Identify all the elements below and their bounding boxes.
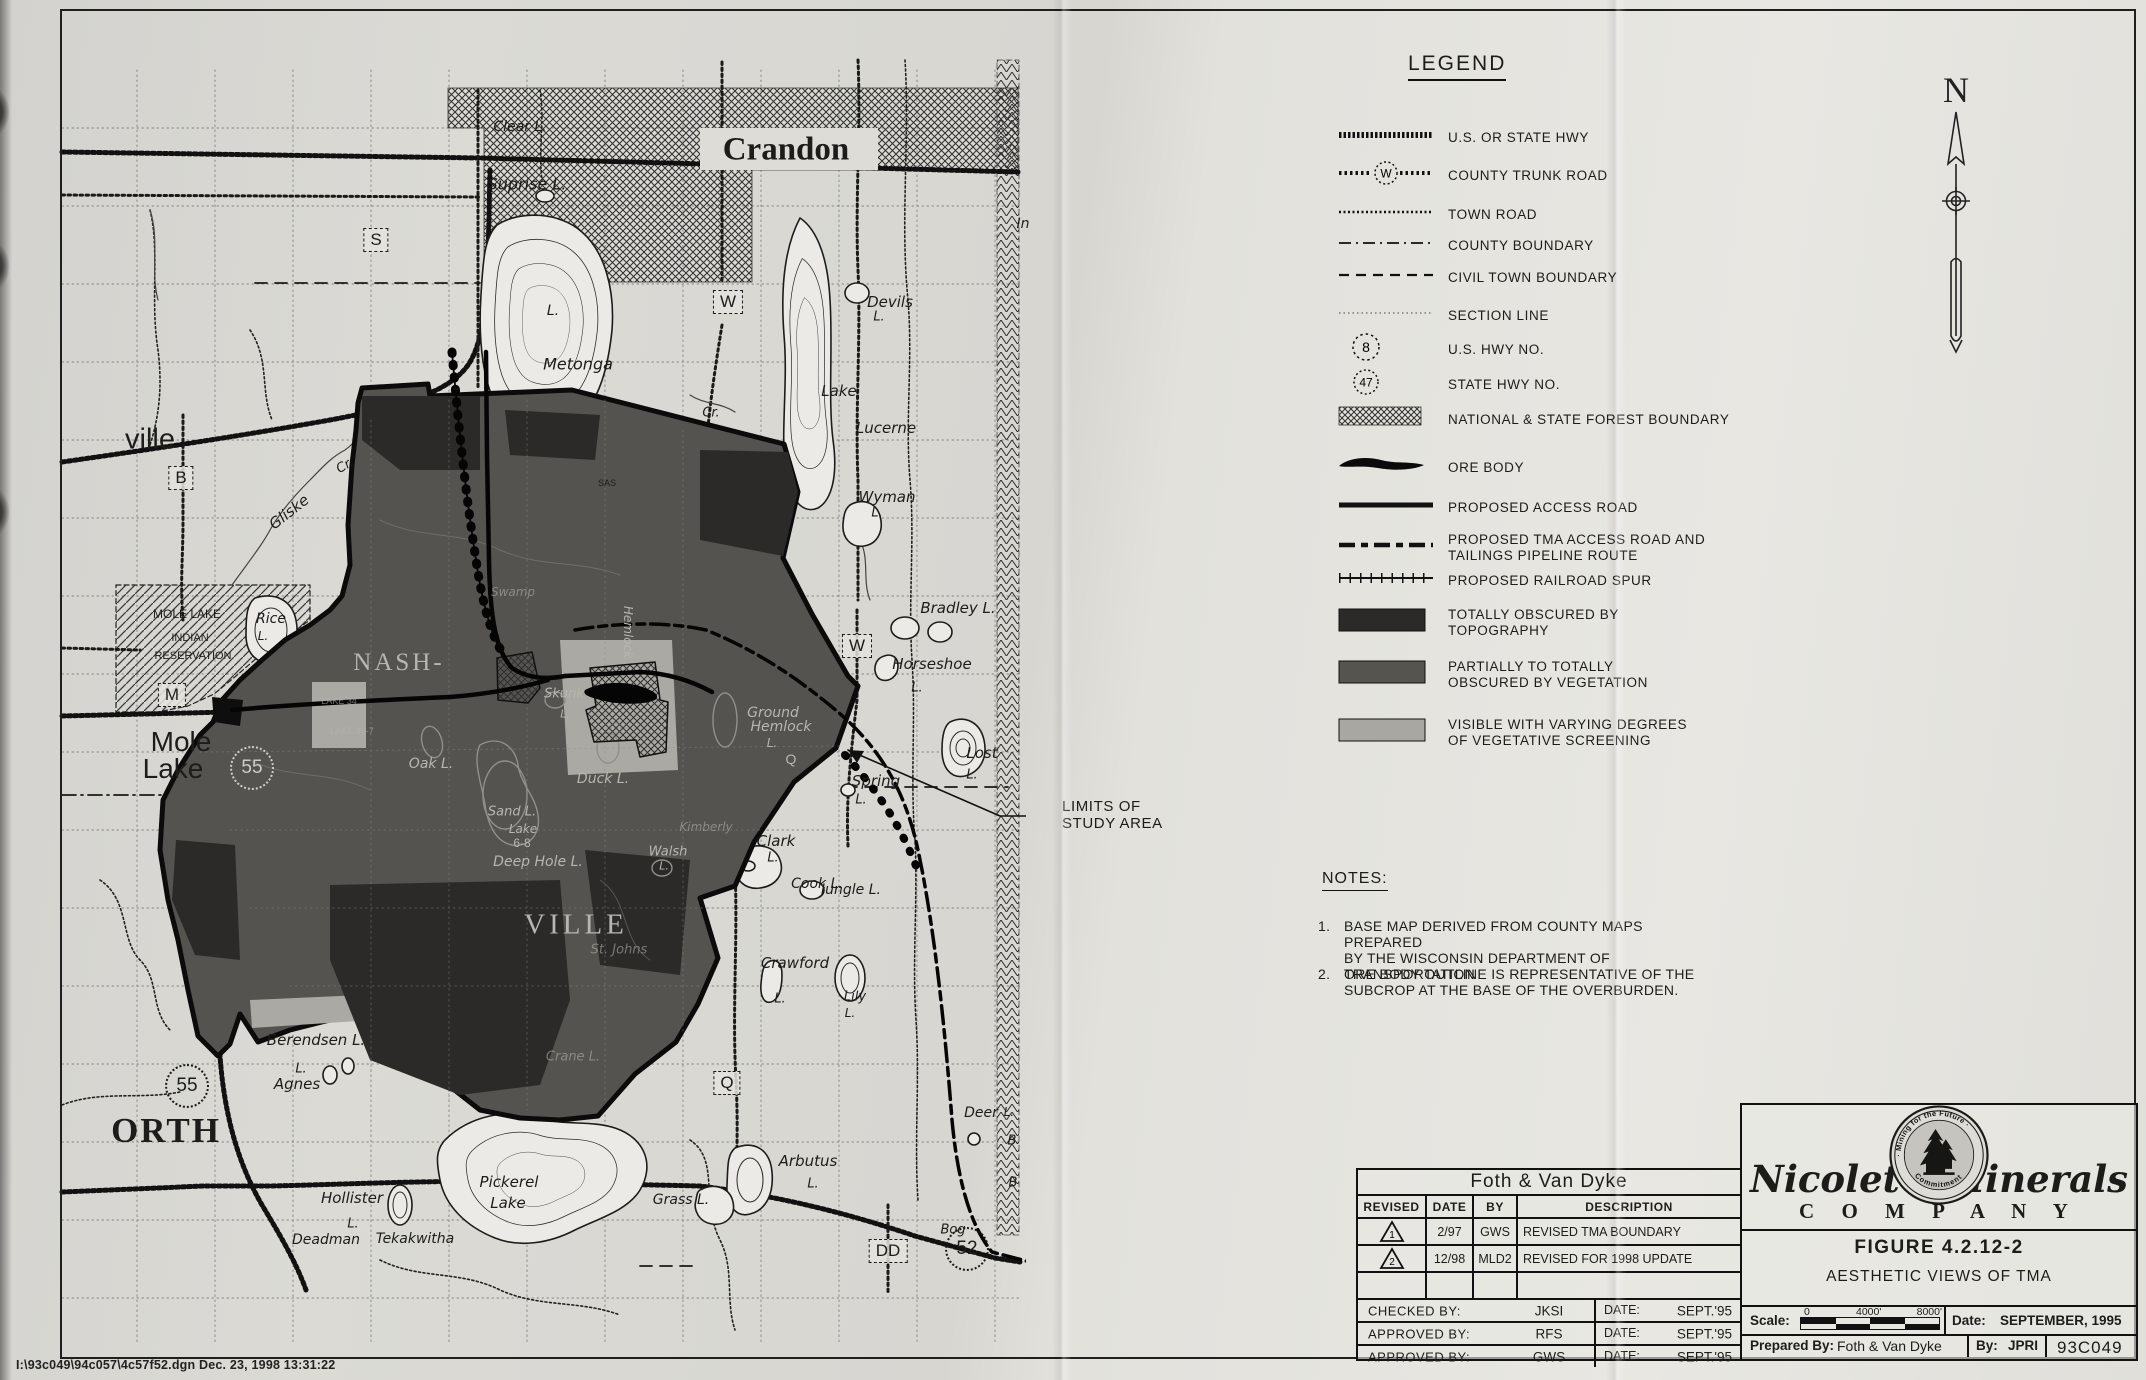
map-label: L. xyxy=(873,310,884,325)
prepared-row: Prepared By: Foth & Van Dyke By: JPRI 93… xyxy=(1742,1334,2136,1357)
map-label: Deer xyxy=(964,1105,998,1121)
legend-item: 47STATE HWY NO. xyxy=(1336,365,1560,404)
revision-cell xyxy=(1427,1273,1474,1298)
revision-header-cell: DATE xyxy=(1427,1196,1474,1217)
legend-item: PROPOSED RAILROAD SPUR xyxy=(1336,561,1652,600)
file-path-line: I:\93c049\94c057\4c57f52.dgn Dec. 23, 19… xyxy=(16,1358,335,1372)
legend-item-label: TOWN ROAD xyxy=(1448,207,1537,223)
legend-item: WCOUNTY TRUNK ROAD xyxy=(1336,156,1608,195)
map-label: Walsh xyxy=(649,845,688,860)
by-label: By: xyxy=(1976,1338,1998,1353)
legend-title: LEGEND xyxy=(1408,52,1506,81)
map-label: L. xyxy=(871,506,882,521)
county-road-box: W xyxy=(842,634,872,658)
map-label: Hemlock xyxy=(621,606,635,658)
trunk-symbol: W xyxy=(1336,156,1436,195)
county-road-box: DD xyxy=(869,1239,908,1263)
signoff-row: APPROVED BY:RFS DATE:SEPT.'95 xyxy=(1358,1323,1740,1346)
revision-header-row: REVISEDDATEBYDESCRIPTION xyxy=(1358,1196,1740,1219)
legend-item: 8U.S. HWY NO. xyxy=(1336,330,1544,369)
revision-header-cell: REVISED xyxy=(1358,1196,1427,1217)
legend-item: PARTIALLY TO TOTALLYOBSCURED BY VEGETATI… xyxy=(1336,656,1648,693)
map-label: Q xyxy=(786,751,797,767)
map-label: Devils xyxy=(867,293,913,311)
map-label: LAKE 35-7 xyxy=(330,726,374,736)
map-label: LAKE 34 xyxy=(321,696,357,706)
highway-number-circle: 55 xyxy=(230,746,274,790)
legend-item-label: PROPOSED ACCESS ROAD xyxy=(1448,500,1638,516)
scan-edge xyxy=(0,0,12,1380)
date-value: SEPTEMBER, 1995 xyxy=(2000,1313,2122,1328)
scale-row: Scale: 0 4000' 8000' Date: xyxy=(1742,1305,2136,1334)
rail-spur-symbol xyxy=(1336,561,1436,600)
map-label: B xyxy=(1009,1176,1018,1191)
map-label: INDIAN xyxy=(171,632,208,644)
map-label: Pickerel xyxy=(480,1173,539,1191)
svg-text:1: 1 xyxy=(1389,1230,1395,1241)
map-label: Horseshoe xyxy=(892,655,971,673)
legend-item: PROPOSED ACCESS ROAD xyxy=(1336,488,1638,527)
revision-cell: REVISED TMA BOUNDARY xyxy=(1518,1219,1740,1244)
highway-number-circle: 52 xyxy=(945,1227,989,1271)
map-label: L. xyxy=(911,681,922,696)
prepared-value: Foth & Van Dyke xyxy=(1837,1338,1942,1354)
company-block: Nicolet Minerals · Mining for the Future… xyxy=(1740,1103,2138,1361)
by-value: JPRI xyxy=(2008,1338,2038,1353)
forest-hatch-symbol xyxy=(1336,400,1436,439)
map-label: Clear L. xyxy=(493,119,546,135)
limits-line-1: LIMITS OF xyxy=(1062,798,1163,815)
legend-item: ORE BODY xyxy=(1336,448,1524,487)
swatch-dark-symbol xyxy=(1336,604,1436,641)
date-label: Date: xyxy=(1952,1313,1986,1328)
map-label: Crandon xyxy=(723,132,850,169)
county-road-box: B xyxy=(168,466,193,490)
map-label: Arbutus xyxy=(779,1152,838,1170)
map-label: Lake xyxy=(821,382,856,400)
map-label: St. Johns xyxy=(591,943,648,958)
map-label: Grass L. xyxy=(653,1192,709,1208)
map-label: L. xyxy=(966,768,977,783)
scanned-map-sheet: N CrandonvilleMoleLakeNASH-VILLEORTHClea… xyxy=(0,0,2146,1380)
legend-item-label: VISIBLE WITH VARYING DEGREESOF VEGETATIV… xyxy=(1448,717,1687,748)
map-label: Agnes xyxy=(274,1075,320,1093)
map-label: Bradley L. xyxy=(920,599,995,617)
legend-item-label: TOTALLY OBSCURED BYTOPOGRAPHY xyxy=(1448,607,1619,638)
legend-item-label: COUNTY TRUNK ROAD xyxy=(1448,168,1608,184)
map-label: Lake xyxy=(490,1194,525,1212)
map-label: L. xyxy=(258,629,269,643)
legend-item-label: SECTION LINE xyxy=(1448,308,1549,324)
map-label: Rice xyxy=(256,611,286,627)
map-label: Oak L. xyxy=(409,756,453,772)
map-label: Hollister xyxy=(321,1189,383,1207)
revision-header-cell: BY xyxy=(1474,1196,1518,1217)
map-label: ORTH xyxy=(111,1111,221,1151)
legend-item: U.S. OR STATE HWY xyxy=(1336,118,1589,157)
title-block: Foth & Van Dyke REVISEDDATEBYDESCRIPTION… xyxy=(1356,1103,2134,1357)
map-label: L. xyxy=(807,1177,818,1192)
map-label: Swamp xyxy=(491,585,535,599)
legend-item: VISIBLE WITH VARYING DEGREESOF VEGETATIV… xyxy=(1336,714,1687,751)
map-label: B xyxy=(1008,1134,1017,1149)
revision-header-cell: DESCRIPTION xyxy=(1518,1196,1740,1217)
map-label: Berendsen L. xyxy=(267,1031,365,1049)
legend-item-label: PARTIALLY TO TOTALLYOBSCURED BY VEGETATI… xyxy=(1448,659,1648,690)
revision-cell: REVISED FOR 1998 UPDATE xyxy=(1518,1246,1740,1271)
legend-item-label: PROPOSED RAILROAD SPUR xyxy=(1448,573,1652,589)
map-label: Wyman xyxy=(858,488,915,506)
revision-cell: 1 xyxy=(1358,1219,1427,1244)
map-label: Tekakwitha xyxy=(376,1231,455,1247)
county-road-box: W xyxy=(713,290,743,314)
map-label: Deadman xyxy=(292,1232,360,1248)
swatch-light-symbol xyxy=(1336,714,1436,751)
map-label: Lily xyxy=(844,990,866,1005)
limits-annotation: LIMITS OF STUDY AREA xyxy=(1062,798,1163,832)
map-label: L. xyxy=(855,793,866,808)
legend-item: CIVIL TOWN BOUNDARY xyxy=(1336,258,1617,297)
note-item: 2.ORE BODY OUTLINE IS REPRESENTATIVE OF … xyxy=(1330,966,1710,998)
svg-text:2: 2 xyxy=(1389,1257,1395,1268)
map-label: L. xyxy=(767,851,778,866)
us-hwy-badge-symbol: 8 xyxy=(1336,330,1436,369)
map-label: L. xyxy=(1004,1105,1015,1119)
notes-title: NOTES: xyxy=(1322,870,1388,891)
revision-row: 212/98MLD2REVISED FOR 1998 UPDATE xyxy=(1358,1246,1740,1273)
map-label: Crane L. xyxy=(546,1050,600,1065)
map-label: L. xyxy=(767,736,778,750)
map-label: L. xyxy=(774,992,785,1007)
svg-text:8: 8 xyxy=(1362,339,1370,355)
revision-cell xyxy=(1474,1273,1518,1298)
company-seal-logo: · Mining for the Future · Commitment xyxy=(1887,1103,1991,1207)
legend-item-label: U.S. HWY NO. xyxy=(1448,342,1544,358)
map-label: Skunk xyxy=(544,687,584,702)
legend-item-label: STATE HWY NO. xyxy=(1448,377,1560,393)
hwy-symbol xyxy=(1336,118,1436,157)
county-road-box: S xyxy=(363,228,388,252)
revision-cell: 2 xyxy=(1358,1246,1427,1271)
map-label: Kimberly xyxy=(679,820,732,834)
map-label: Jungle L. xyxy=(821,882,881,898)
legend-item-label: CIVIL TOWN BOUNDARY xyxy=(1448,270,1617,286)
figure-number: FIGURE 4.2.12-2 xyxy=(1742,1237,2136,1259)
revision-cell: 12/98 xyxy=(1427,1246,1474,1271)
civil-boundary-symbol xyxy=(1336,258,1436,297)
map-label: L. xyxy=(547,303,559,319)
svg-text:W: W xyxy=(1380,167,1392,181)
revision-row xyxy=(1358,1273,1740,1300)
map-label: Lake xyxy=(509,822,537,836)
revision-table: Foth & Van Dyke REVISEDDATEBYDESCRIPTION… xyxy=(1356,1168,1742,1361)
prepared-label: Prepared By: xyxy=(1750,1338,1834,1353)
map-label: 6-8 xyxy=(513,836,530,850)
access-road-symbol xyxy=(1336,488,1436,527)
map-label: Spring xyxy=(852,772,900,790)
map-label: SAS xyxy=(598,478,616,488)
figure-title: AESTHETIC VIEWS OF TMA xyxy=(1742,1268,2136,1286)
legend-item-label: U.S. OR STATE HWY xyxy=(1448,130,1589,146)
county-road-box: M xyxy=(158,683,186,707)
map-label: Duck L. xyxy=(577,771,629,787)
legend-item-label: COUNTY BOUNDARY xyxy=(1448,238,1594,254)
state-hwy-badge-symbol: 47 xyxy=(1336,365,1436,404)
revision-cell xyxy=(1358,1273,1427,1298)
legend-item-label: PROPOSED TMA ACCESS ROAD ANDTAILINGS PIP… xyxy=(1448,532,1705,563)
signoff-row: APPROVED BY:GWS DATE:SEPT.'95 xyxy=(1358,1346,1740,1367)
company-word: C O M P A N Y xyxy=(1742,1199,2136,1224)
legend-item-label: NATIONAL & STATE FOREST BOUNDARY xyxy=(1448,412,1730,428)
legend-item-label: ORE BODY xyxy=(1448,460,1524,476)
map-label: Crawford xyxy=(761,954,829,972)
swatch-medium-symbol xyxy=(1336,656,1436,693)
highway-number-circle: 55 xyxy=(165,1064,209,1108)
revision-cell: GWS xyxy=(1474,1219,1518,1244)
svg-text:47: 47 xyxy=(1359,376,1373,390)
map-label: Lost xyxy=(966,744,997,762)
map-label: L. xyxy=(845,1006,856,1020)
company-name-left: Nicolet xyxy=(1750,1157,1900,1201)
signoff-row: CHECKED BY:JKSI DATE:SEPT.'95 xyxy=(1358,1300,1740,1323)
revision-row: 12/97GWSREVISED TMA BOUNDARY xyxy=(1358,1219,1740,1246)
map-label: RESERVATION xyxy=(154,650,231,662)
map-label: Sand L. xyxy=(488,805,536,820)
map-label: ville xyxy=(125,424,175,457)
firm-name: Foth & Van Dyke xyxy=(1358,1170,1740,1196)
map-label: Clark xyxy=(757,832,796,850)
map-label: Metonga xyxy=(543,355,613,374)
revision-cell: 2/97 xyxy=(1427,1219,1474,1244)
ore-body-symbol xyxy=(1336,448,1436,487)
limits-line-2: STUDY AREA xyxy=(1062,815,1163,832)
scale-bar: 0 4000' 8000' xyxy=(1800,1306,1940,1332)
legend-item: NATIONAL & STATE FOREST BOUNDARY xyxy=(1336,400,1730,439)
map-label: Suprise L. xyxy=(488,175,567,194)
map-label: VILLE xyxy=(524,909,628,942)
map-label: L. xyxy=(347,1217,358,1232)
map-label: MOLE LAKE xyxy=(153,607,221,621)
map-label: L. xyxy=(659,860,669,873)
county-road-box: Q xyxy=(713,1071,740,1095)
scale-label: Scale: xyxy=(1750,1313,1790,1328)
map-label: Cr. xyxy=(702,406,719,421)
revision-cell xyxy=(1518,1273,1740,1298)
legend-item: TOTALLY OBSCURED BYTOPOGRAPHY xyxy=(1336,604,1619,641)
map-label: In xyxy=(1016,216,1029,232)
job-number: 93C049 xyxy=(2057,1338,2123,1358)
map-label: L. xyxy=(560,708,570,721)
map-label: Hemlock xyxy=(750,719,811,735)
revision-cell: MLD2 xyxy=(1474,1246,1518,1271)
map-label: NASH- xyxy=(353,649,444,677)
map-label: Lucerne xyxy=(856,419,916,437)
map-label: Lake xyxy=(143,753,204,785)
map-label: Deep Hole L. xyxy=(493,854,583,870)
